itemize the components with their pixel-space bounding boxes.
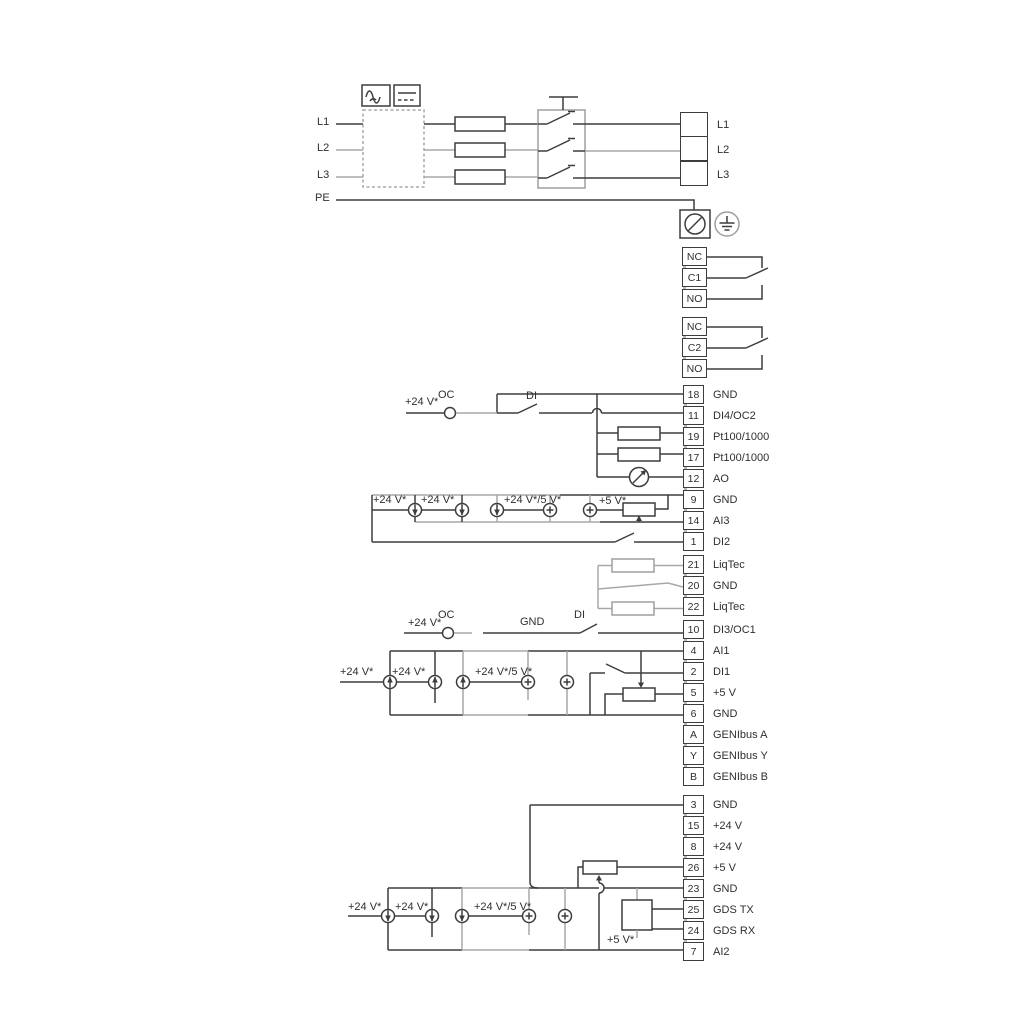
terminal-row: C2 xyxy=(682,338,716,357)
terminal-row: NO xyxy=(682,289,716,308)
terminal-label: GND xyxy=(713,708,737,720)
terminal-number: C1 xyxy=(682,268,707,287)
terminal-number: 25 xyxy=(683,900,704,919)
terminal-label: GND xyxy=(713,580,737,592)
pe-wire xyxy=(336,200,694,210)
terminal-number: B xyxy=(683,767,704,786)
wiring-diagram-canvas xyxy=(0,0,1024,1024)
terminal-row: BGENIbus B xyxy=(683,767,768,786)
di2-switch xyxy=(372,533,683,542)
label-plus24v: +24 V* xyxy=(340,667,373,678)
terminal-label: L2 xyxy=(717,144,729,156)
io-terminal-block-mid: 10DI3/OC14AI12DI15+5 V6GNDAGENIbus AYGEN… xyxy=(683,620,768,786)
terminal-row: 8+24 V xyxy=(683,837,755,856)
label-plus24v-or-5v: +24 V*/5 V* xyxy=(474,902,531,913)
phase-label-pe: PE xyxy=(315,193,330,204)
terminal-row: C1 xyxy=(682,268,716,287)
liqtec-terminal-block: 21LiqTec20GND22LiqTec xyxy=(683,555,745,616)
gds-sensor-box xyxy=(622,888,683,938)
terminal-label: +5 V xyxy=(713,687,736,699)
terminal-row: L2 xyxy=(680,137,729,162)
phase-label-l3: L3 xyxy=(317,170,329,181)
terminal-label: DI1 xyxy=(713,666,730,678)
terminal-label: AI1 xyxy=(713,645,730,657)
phase-label-l1: L1 xyxy=(317,117,329,128)
terminal-label: Pt100/1000 xyxy=(713,452,769,464)
terminal-number: A xyxy=(683,725,704,744)
phase-label-l2: L2 xyxy=(317,143,329,154)
label-plus5v: +5 V* xyxy=(607,935,634,946)
terminal-row: 11DI4/OC2 xyxy=(683,406,769,425)
terminal-row: NC xyxy=(682,247,716,266)
gnd-3-wire xyxy=(530,805,683,888)
terminal-number: C2 xyxy=(682,338,707,357)
terminal-label: +5 V xyxy=(713,862,736,874)
terminal-row: 15+24 V xyxy=(683,816,755,835)
open-collector-node xyxy=(443,628,454,639)
io-terminal-block-lower: 3GND15+24 V8+24 V26+5 V23GND25GDS TX24GD… xyxy=(683,795,755,961)
terminal-row: 23GND xyxy=(683,879,755,898)
label-gnd: GND xyxy=(520,617,544,628)
terminal-row: 20GND xyxy=(683,576,745,595)
terminal-row: 5+5 V xyxy=(683,683,768,702)
terminal-row: 17Pt100/1000 xyxy=(683,448,769,467)
terminal-row: 14AI3 xyxy=(683,511,769,530)
current-source-icon xyxy=(340,651,470,715)
earth-icon xyxy=(715,212,739,236)
wire-hop xyxy=(599,883,604,893)
relay-contact-1 xyxy=(707,257,768,299)
terminal-number: NC xyxy=(682,247,707,266)
terminal-row: 4AI1 xyxy=(683,641,768,660)
terminal-label: GND xyxy=(713,799,737,811)
terminal-number: Y xyxy=(683,746,704,765)
terminal-row: 7AI2 xyxy=(683,942,755,961)
voltage-source-icon xyxy=(470,651,574,715)
terminal-label: DI2 xyxy=(713,536,730,548)
terminal-row: L1 xyxy=(680,112,729,137)
io-terminal-block-upper: 18GND11DI4/OC219Pt100/100017Pt100/100012… xyxy=(683,385,769,551)
terminal-label: GENIbus A xyxy=(713,729,767,741)
terminal-label: LiqTec xyxy=(713,601,745,613)
terminal-label: GND xyxy=(713,389,737,401)
ai1-potentiometer xyxy=(605,651,683,715)
terminal-row: 10DI3/OC1 xyxy=(683,620,768,639)
terminal-label: +24 V xyxy=(713,841,742,853)
terminal-number: 26 xyxy=(683,858,704,877)
terminal-label: LiqTec xyxy=(713,559,745,571)
pt100-resistor xyxy=(597,427,683,461)
terminal-row: 2DI1 xyxy=(683,662,768,681)
emc-filter-box xyxy=(363,110,424,187)
terminal-number: 18 xyxy=(683,385,704,404)
terminal-row: NO xyxy=(682,359,716,378)
label-plus24v: +24 V* xyxy=(373,495,406,506)
terminal-row: 3GND xyxy=(683,795,755,814)
label-plus24v-or-5v: +24 V*/5 V* xyxy=(504,495,561,506)
terminal-row: 25GDS TX xyxy=(683,900,755,919)
terminal-number: NC xyxy=(682,317,707,336)
terminal-number: 8 xyxy=(683,837,704,856)
terminal-number: 19 xyxy=(683,427,704,446)
mains-input-wires xyxy=(336,124,363,177)
relay2-terminal-block: NCC2NO xyxy=(682,317,716,378)
label-di: DI xyxy=(574,610,585,621)
mains-terminal-block: L1L2L3 xyxy=(680,112,729,187)
label-plus24v: +24 V* xyxy=(348,902,381,913)
terminal-row: 24GDS RX xyxy=(683,921,755,940)
label-plus24v: +24 V* xyxy=(405,397,438,408)
terminal-label: AI2 xyxy=(713,946,730,958)
terminal-label: AI3 xyxy=(713,515,730,527)
terminal-number: 2 xyxy=(683,662,704,681)
analog-output-meter-icon xyxy=(597,468,683,487)
terminal-label: DI3/OC1 xyxy=(713,624,756,636)
terminal-number: 7 xyxy=(683,942,704,961)
terminal-label: GENIbus B xyxy=(713,771,768,783)
terminal-row: 1DI2 xyxy=(683,532,769,551)
main-switch xyxy=(538,97,585,188)
terminal-number xyxy=(680,112,708,137)
di4-input-circuit xyxy=(406,404,683,419)
terminal-row: 26+5 V xyxy=(683,858,755,877)
wiring-diagram-page: L1 L2 L3 PE +24 V* OC DI +24 V* +24 V* +… xyxy=(0,0,1024,1024)
label-plus24v: +24 V* xyxy=(408,618,441,629)
liqtec-sensor-circuit xyxy=(598,559,683,615)
terminal-label: +24 V xyxy=(713,820,742,832)
label-plus24v: +24 V* xyxy=(395,902,428,913)
label-oc: OC xyxy=(438,610,455,621)
label-di: DI xyxy=(526,391,537,402)
terminal-number: 17 xyxy=(683,448,704,467)
terminal-number: 1 xyxy=(683,532,704,551)
terminal-label: AO xyxy=(713,473,729,485)
terminal-number xyxy=(680,136,708,161)
terminal-number: 11 xyxy=(683,406,704,425)
label-oc: OC xyxy=(438,390,455,401)
voltage-source-icon xyxy=(469,888,572,950)
label-plus5v: +5 V* xyxy=(599,496,626,507)
terminal-number: NO xyxy=(682,289,707,308)
terminal-row: NC xyxy=(682,317,716,336)
terminal-row: 21LiqTec xyxy=(683,555,745,574)
terminal-number: 6 xyxy=(683,704,704,723)
terminal-label: DI4/OC2 xyxy=(713,410,756,422)
terminal-row: 9GND xyxy=(683,490,769,509)
label-plus24v: +24 V* xyxy=(421,495,454,506)
terminal-label: L1 xyxy=(717,119,729,131)
open-collector-node xyxy=(445,408,456,419)
terminal-number: 24 xyxy=(683,921,704,940)
terminal-label: GDS TX xyxy=(713,904,754,916)
terminal-number: 20 xyxy=(683,576,704,595)
ai3-potentiometer xyxy=(623,495,668,522)
ac-symbol-icon xyxy=(362,85,390,106)
terminal-row: AGENIbus A xyxy=(683,725,768,744)
terminal-row: L3 xyxy=(680,162,729,187)
terminal-number: 5 xyxy=(683,683,704,702)
label-plus24v: +24 V* xyxy=(392,667,425,678)
terminal-row: 6GND xyxy=(683,704,768,723)
terminal-number: 3 xyxy=(683,795,704,814)
terminal-label: GND xyxy=(713,883,737,895)
terminal-number xyxy=(680,161,708,186)
relay1-terminal-block: NCC1NO xyxy=(682,247,716,308)
terminal-number: NO xyxy=(682,359,707,378)
phase-wires-to-terminals xyxy=(585,124,680,178)
terminal-row: 18GND xyxy=(683,385,769,404)
terminal-number: 22 xyxy=(683,597,704,616)
terminal-label: GDS RX xyxy=(713,925,755,937)
terminal-label: Pt100/1000 xyxy=(713,431,769,443)
terminal-label: GENIbus Y xyxy=(713,750,768,762)
terminal-number: 14 xyxy=(683,511,704,530)
dc-symbol-icon xyxy=(394,85,420,106)
relay-contact-2 xyxy=(707,327,768,369)
terminal-row: 12AO xyxy=(683,469,769,488)
label-plus24v-or-5v: +24 V*/5 V* xyxy=(475,667,532,678)
terminal-number: 10 xyxy=(683,620,704,639)
terminal-number: 15 xyxy=(683,816,704,835)
terminal-number: 23 xyxy=(683,879,704,898)
terminal-number: 9 xyxy=(683,490,704,509)
terminal-number: 4 xyxy=(683,641,704,660)
fuse xyxy=(455,117,505,184)
terminal-row: 22LiqTec xyxy=(683,597,745,616)
terminal-number: 12 xyxy=(683,469,704,488)
terminal-label: L3 xyxy=(717,169,729,181)
pe-terminal-icon xyxy=(680,210,710,238)
terminal-label: GND xyxy=(713,494,737,506)
terminal-row: YGENIbus Y xyxy=(683,746,768,765)
terminal-number: 21 xyxy=(683,555,704,574)
terminal-row: 19Pt100/1000 xyxy=(683,427,769,446)
current-source-icon xyxy=(348,888,469,950)
